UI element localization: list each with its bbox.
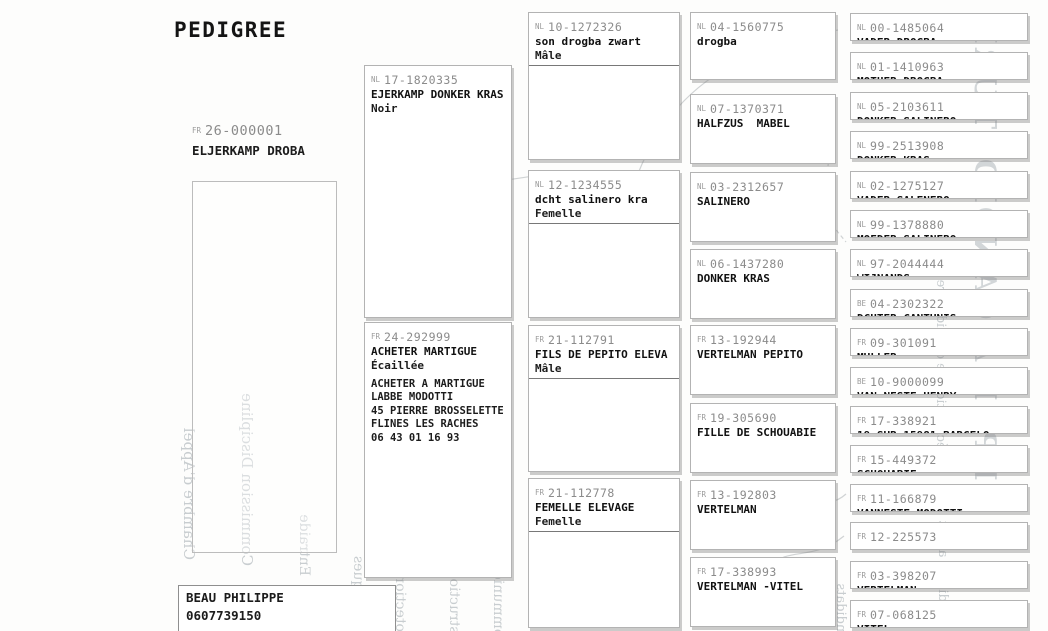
- ring-row: FR21-112791: [535, 329, 673, 348]
- bird-name: SALINERO: [697, 195, 829, 209]
- bird-name: 19 SUR 15981 BARCELO: [857, 429, 1021, 434]
- pedigree-box-gen3-2: NL07-1370371HALFZUS MABEL: [690, 94, 836, 164]
- country-code: NL: [697, 182, 706, 191]
- sex-label: Mâle: [529, 362, 679, 379]
- pedigree-box-gen4-14: FR12-225573: [850, 522, 1028, 550]
- country-code: FR: [697, 490, 706, 499]
- bird-name: VERTELMAN -VITEL: [697, 580, 829, 594]
- ring-number: 11-166879: [870, 492, 937, 506]
- ring-row: FR15-449372: [857, 449, 1021, 468]
- ring-number: 01-1410963: [870, 60, 944, 74]
- pedigree-box-gen4-13: FR11-166879VANNESTE MODOTTI: [850, 484, 1028, 512]
- subject-ring-number: 26-000001: [205, 123, 283, 139]
- ring-row: FR13-192803: [697, 484, 829, 503]
- pedigree-box-gen3-6: FR19-305690FILLE DE SCHOUABIE: [690, 403, 836, 473]
- pedigree-box-gen3-8: FR17-338993VERTELMAN -VITEL: [690, 557, 836, 627]
- pedigree-box-gen4-11: FR17-33892119 SUR 15981 BARCELO: [850, 406, 1028, 434]
- pedigree-box-gen4-5: NL02-1275127VADER SALENERO: [850, 171, 1028, 199]
- ring-number: 19-305690: [710, 411, 777, 425]
- breeder-name: BEAU PHILIPPE: [186, 589, 388, 607]
- pedigree-box-gen3-1: NL04-1560775drogba: [690, 12, 836, 80]
- pedigree-box-gen1-2: FR24-292999ACHETER MARTIGUEÉcailléeACHET…: [364, 322, 512, 578]
- breeder-phone: 0607739150: [186, 607, 388, 625]
- bird-name: VERTELMAN: [697, 503, 829, 517]
- pedigree-box-gen4-6: NL99-1378880MOEDER SALINERO: [850, 210, 1028, 238]
- bird-name: VITEL: [857, 623, 1021, 628]
- ring-number: 12-225573: [870, 530, 937, 544]
- ring-number: 06-1437280: [710, 257, 784, 271]
- country-code: FR: [535, 335, 544, 344]
- bird-name: FEMELLE ELEVAGE: [535, 501, 673, 515]
- country-code: NL: [857, 181, 866, 190]
- pedigree-box-gen2-2: NL12-1234555dcht salinero kraFemelle: [528, 170, 680, 318]
- ring-number: 17-338993: [710, 565, 777, 579]
- watermark-text: Instruction: [446, 570, 462, 631]
- breeder-box: BEAU PHILIPPE 0607739150: [178, 585, 396, 631]
- ring-number: 13-192803: [710, 488, 777, 502]
- country-code: FR: [857, 532, 866, 541]
- bird-name: VERTELMAN PEPITO: [697, 348, 829, 362]
- subject-photo-box: [192, 181, 337, 553]
- country-code: FR: [371, 332, 380, 341]
- country-code: FR: [857, 571, 866, 580]
- bird-name: drogba: [697, 35, 829, 49]
- pedigree-box-gen4-4: NL99-2513908DONKER KRAS: [850, 131, 1028, 159]
- bird-name: HALFZUS MABEL: [697, 117, 829, 131]
- bird-name: SCHOUABIE: [857, 468, 1021, 473]
- bird-name: ACHETER MARTIGUE: [371, 345, 505, 359]
- bird-name: DONKER SALINERO: [857, 115, 1021, 120]
- ring-number: 04-2302322: [870, 297, 944, 311]
- ring-row: FR21-112778: [535, 482, 673, 501]
- country-code: FR: [697, 567, 706, 576]
- page-title: PEDIGREE: [174, 18, 287, 42]
- pedigree-box-gen4-2: NL01-1410963MOTHER DROGBA: [850, 52, 1028, 80]
- country-code: FR: [857, 455, 866, 464]
- country-code: BE: [857, 377, 866, 386]
- pedigree-box-gen3-3: NL03-2312657SALINERO: [690, 172, 836, 242]
- ring-row: FR19-305690: [697, 407, 829, 426]
- ring-row: NL02-1275127: [857, 175, 1021, 194]
- country-code: NL: [857, 102, 866, 111]
- country-code: BE: [857, 299, 866, 308]
- ring-row: NL00-1485064: [857, 17, 1021, 36]
- ring-row: NL10-1272326: [535, 16, 673, 35]
- ring-row: FR12-225573: [857, 526, 1021, 545]
- ring-row: FR17-338921: [857, 410, 1021, 429]
- ring-row: NL17-1820335: [371, 69, 505, 88]
- ring-row: FR11-166879: [857, 488, 1021, 507]
- subject-country-code: FR: [192, 126, 201, 135]
- ring-row: FR09-301091: [857, 332, 1021, 351]
- ring-number: 17-1820335: [384, 73, 458, 87]
- ring-number: 03-2312657: [710, 180, 784, 194]
- country-code: NL: [857, 62, 866, 71]
- sex-label: Femelle: [529, 207, 679, 224]
- bird-name: VADER DROGBA: [857, 36, 1021, 41]
- pedigree-box-gen1-1: NL17-1820335EJERKAMP DONKER KRASNoir: [364, 65, 512, 318]
- country-code: NL: [535, 180, 544, 189]
- bird-name: FILS DE PEPITO ELEVA: [535, 348, 673, 362]
- bird-name: son drogba zwart: [535, 35, 673, 49]
- bird-name: DCHTER CANTUNIS: [857, 312, 1021, 317]
- ring-number: 24-292999: [384, 330, 451, 344]
- bird-name: VAN NESTE HENRY: [857, 390, 1021, 395]
- pedigree-box-gen2-3: FR21-112791FILS DE PEPITO ELEVAMâle: [528, 325, 680, 472]
- sex-label: Mâle: [529, 49, 679, 66]
- country-code: NL: [371, 75, 380, 84]
- ring-row: NL04-1560775: [697, 16, 829, 35]
- bird-name: VADER SALENERO: [857, 194, 1021, 199]
- ring-row: NL01-1410963: [857, 56, 1021, 75]
- note-line: LABBE MODOTTI: [371, 391, 505, 405]
- country-code: NL: [697, 22, 706, 31]
- pedigree-box-gen4-12: FR15-449372SCHOUABIE: [850, 445, 1028, 473]
- breeder-notes: ACHETER A MARTIGUELABBE MODOTTI45 PIERRE…: [371, 378, 505, 446]
- country-code: FR: [857, 416, 866, 425]
- ring-number: 15-449372: [870, 453, 937, 467]
- country-code: FR: [697, 413, 706, 422]
- pedigree-box-gen4-10: BE10-9000099VAN NESTE HENRY: [850, 367, 1028, 395]
- pedigree-box-gen4-9: FR09-301091MULLER: [850, 328, 1028, 356]
- ring-row: FR17-338993: [697, 561, 829, 580]
- ring-number: 02-1275127: [870, 179, 944, 193]
- ring-number: 07-068125: [870, 608, 937, 622]
- sex-label: Femelle: [529, 515, 679, 532]
- ring-number: 13-192944: [710, 333, 777, 347]
- ring-number: 04-1560775: [710, 20, 784, 34]
- ring-number: 99-1378880: [870, 218, 944, 232]
- ring-row: NL99-2513908: [857, 135, 1021, 154]
- ring-row: NL07-1370371: [697, 98, 829, 117]
- pedigree-box-gen3-4: NL06-1437280DONKER KRAS: [690, 249, 836, 319]
- country-code: FR: [857, 610, 866, 619]
- ring-row: NL99-1378880: [857, 214, 1021, 233]
- subject-ring: FR26-000001: [192, 120, 283, 139]
- ring-number: 09-301091: [870, 336, 937, 350]
- bird-name: FILLE DE SCHOUABIE: [697, 426, 829, 440]
- pedigree-box-gen4-16: FR07-068125VITEL: [850, 600, 1028, 628]
- pedigree-box-gen4-15: FR03-398207VERTELMAN: [850, 561, 1028, 589]
- ring-number: 00-1485064: [870, 21, 944, 35]
- bird-name: WIJNANDS: [857, 272, 1021, 277]
- country-code: NL: [857, 141, 866, 150]
- ring-number: 07-1370371: [710, 102, 784, 116]
- bird-name: MOTHER DROGBA: [857, 75, 1021, 80]
- bird-name: MOEDER SALINERO: [857, 233, 1021, 238]
- color-label: Noir: [371, 102, 505, 116]
- ring-number: 97-2044444: [870, 257, 944, 271]
- bird-name: MULLER: [857, 351, 1021, 356]
- country-code: NL: [857, 23, 866, 32]
- note-line: ACHETER A MARTIGUE: [371, 378, 505, 392]
- bird-name: DONKER KRAS: [857, 154, 1021, 159]
- pedigree-box-gen4-7: NL97-2044444WIJNANDS: [850, 249, 1028, 277]
- bird-name: VANNESTE MODOTTI: [857, 507, 1021, 512]
- ring-row: NL05-2103611: [857, 96, 1021, 115]
- ring-number: 21-112791: [548, 333, 615, 347]
- ring-number: 10-9000099: [870, 375, 944, 389]
- bird-name: VERTELMAN: [857, 584, 1021, 589]
- ring-number: 03-398207: [870, 569, 937, 583]
- country-code: FR: [697, 335, 706, 344]
- bird-name: EJERKAMP DONKER KRAS: [371, 88, 505, 102]
- note-line: FLINES LES RACHES: [371, 418, 505, 432]
- pedigree-box-gen2-4: FR21-112778FEMELLE ELEVAGEFemelle: [528, 478, 680, 628]
- pedigree-document: Chambre d'AppelCommission DisciplineEntr…: [0, 0, 1048, 631]
- country-code: FR: [857, 494, 866, 503]
- ring-number: 05-2103611: [870, 100, 944, 114]
- ring-number: 99-2513908: [870, 139, 944, 153]
- ring-row: NL97-2044444: [857, 253, 1021, 272]
- pedigree-box-gen3-5: FR13-192944VERTELMAN PEPITO: [690, 325, 836, 395]
- ring-row: FR07-068125: [857, 604, 1021, 623]
- ring-row: NL12-1234555: [535, 174, 673, 193]
- ring-number: 17-338921: [870, 414, 937, 428]
- note-line: 06 43 01 16 93: [371, 432, 505, 446]
- pedigree-box-gen4-3: NL05-2103611DONKER SALINERO: [850, 92, 1028, 120]
- country-code: NL: [697, 259, 706, 268]
- country-code: NL: [535, 22, 544, 31]
- ring-row: NL03-2312657: [697, 176, 829, 195]
- ring-row: FR24-292999: [371, 326, 505, 345]
- country-code: NL: [697, 104, 706, 113]
- country-code: FR: [535, 488, 544, 497]
- ring-row: BE04-2302322: [857, 293, 1021, 312]
- country-code: NL: [857, 259, 866, 268]
- ring-number: 10-1272326: [548, 20, 622, 34]
- ring-row: NL06-1437280: [697, 253, 829, 272]
- ring-row: FR03-398207: [857, 565, 1021, 584]
- ring-row: BE10-9000099: [857, 371, 1021, 390]
- pedigree-box-gen4-8: BE04-2302322DCHTER CANTUNIS: [850, 289, 1028, 317]
- ring-number: 12-1234555: [548, 178, 622, 192]
- country-code: NL: [857, 220, 866, 229]
- note-line: 45 PIERRE BROSSELETTE: [371, 405, 505, 419]
- bird-name: DONKER KRAS: [697, 272, 829, 286]
- pedigree-box-gen3-7: FR13-192803VERTELMAN: [690, 480, 836, 550]
- ring-number: 21-112778: [548, 486, 615, 500]
- pedigree-box-gen2-1: NL10-1272326son drogba zwartMâle: [528, 12, 680, 160]
- color-label: Écaillée: [371, 359, 505, 373]
- pedigree-box-gen4-1: NL00-1485064VADER DROGBA: [850, 13, 1028, 41]
- subject-name: ELJERKAMP DROBA: [192, 143, 305, 158]
- ring-row: FR13-192944: [697, 329, 829, 348]
- bird-name: dcht salinero kra: [535, 193, 673, 207]
- country-code: FR: [857, 338, 866, 347]
